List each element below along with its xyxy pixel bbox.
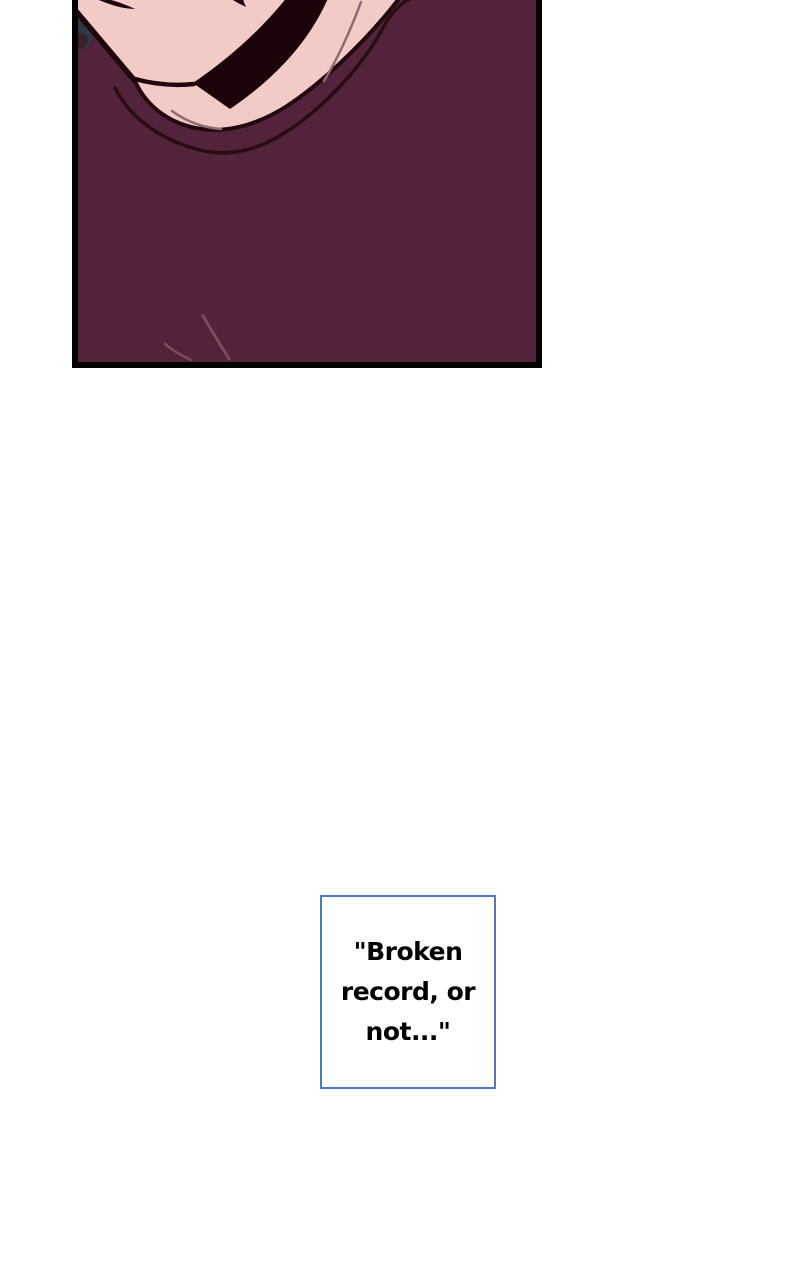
caption-line-3: not..." xyxy=(366,1012,451,1052)
character-artwork xyxy=(72,0,542,368)
caption-box: "Broken record, or not..." xyxy=(320,895,496,1089)
webtoon-page: "Broken record, or not..." xyxy=(0,0,800,1280)
caption-line-1: "Broken xyxy=(354,932,463,972)
comic-panel xyxy=(72,0,542,368)
caption-line-2: record, or xyxy=(341,972,475,1012)
